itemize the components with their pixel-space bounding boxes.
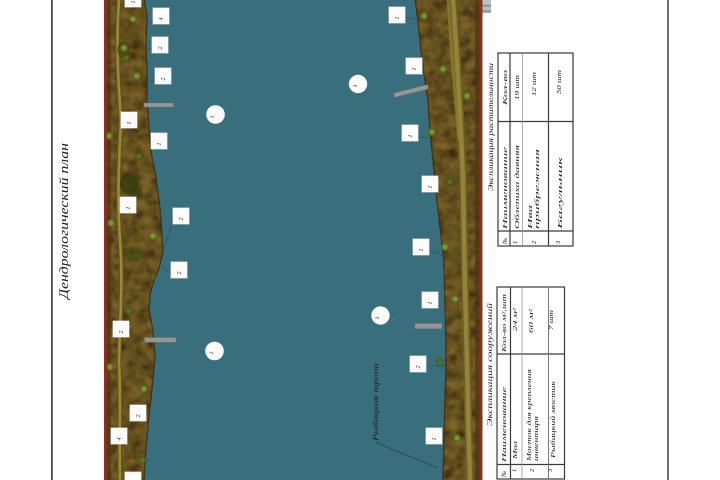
svg-text:1: 1 [419, 249, 425, 252]
svg-text:3: 3 [353, 84, 359, 88]
svg-text:1: 1 [512, 241, 519, 244]
svg-text:№: № [502, 238, 509, 245]
svg-text:2: 2 [158, 47, 164, 50]
svg-text:1: 1 [408, 135, 414, 138]
svg-text:2: 2 [136, 415, 142, 418]
svg-text:19 шт: 19 шт [514, 75, 521, 100]
svg-text:Дендрологический план: Дендрологический план [56, 143, 71, 301]
svg-text:Ива: Ива [527, 205, 534, 231]
svg-text:1: 1 [428, 302, 434, 305]
svg-text:Экспликация сооружений: Экспликация сооружений [485, 303, 494, 426]
svg-text:Наименование: Наименование [501, 387, 508, 464]
svg-text:1: 1 [412, 68, 418, 71]
svg-text:50 шт: 50 шт [556, 70, 563, 94]
svg-text:4: 4 [158, 18, 165, 21]
svg-text:№: № [501, 471, 508, 478]
svg-text:инвентаря: инвентаря [533, 416, 540, 461]
svg-text:Мосток для крепления: Мосток для крепления [526, 369, 533, 462]
svg-text:3: 3 [210, 115, 216, 119]
svg-text:1: 1 [131, 1, 137, 4]
svg-text:3: 3 [375, 316, 381, 320]
svg-text:Кол-во м²,шт: Кол-во м²,шт [501, 294, 508, 354]
svg-text:Рыбацкий мостик: Рыбацкий мостик [550, 380, 557, 460]
svg-text:12 шт: 12 шт [531, 72, 538, 96]
svg-text:Рыбацкая тропа: Рыбацкая тропа [372, 362, 380, 442]
svg-text:2: 2 [161, 78, 167, 81]
svg-text:1: 1 [428, 186, 434, 189]
svg-text:60 м²: 60 м² [528, 307, 535, 333]
svg-text:Наименование: Наименование [502, 147, 509, 231]
svg-text:2: 2 [209, 351, 215, 354]
svg-text:24 м²: 24 м² [512, 306, 519, 331]
svg-text:2: 2 [177, 272, 183, 275]
svg-text:4: 4 [116, 438, 123, 441]
svg-text:2: 2 [416, 366, 422, 369]
svg-text:Мол: Мол [512, 441, 519, 461]
svg-text:1: 1 [432, 438, 438, 441]
svg-text:2: 2 [179, 218, 185, 221]
svg-text:Багульник: Багульник [557, 155, 564, 232]
svg-text:1: 1 [127, 122, 133, 125]
svg-text:Облепиха давняя: Облепиха давняя [514, 145, 521, 229]
svg-text:1: 1 [511, 469, 518, 472]
svg-text:прибрежная: прибрежная [534, 149, 541, 229]
svg-text:Кол-во: Кол-во [502, 69, 509, 107]
svg-text:1: 1 [126, 207, 132, 210]
svg-text:Экспликация растительности: Экспликация растительности [486, 63, 495, 191]
svg-text:1: 1 [157, 143, 163, 146]
svg-text:1: 1 [395, 17, 401, 20]
svg-text:2: 2 [119, 331, 125, 334]
svg-text:7 шт: 7 шт [548, 310, 555, 330]
